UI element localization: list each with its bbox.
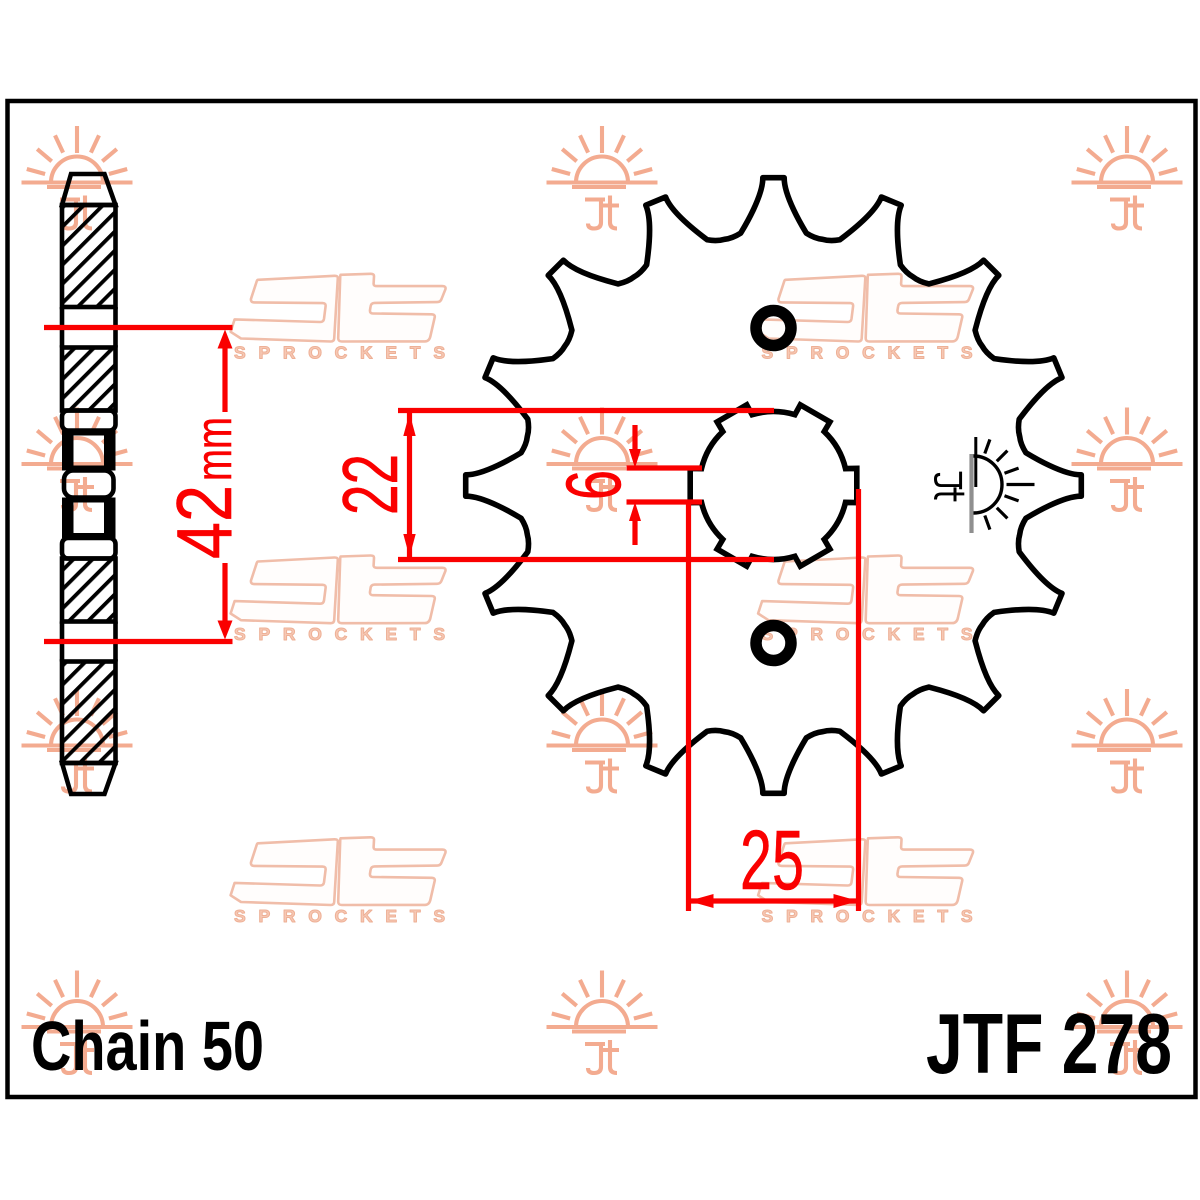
svg-text:22: 22	[326, 454, 414, 515]
svg-text:JTF 278: JTF 278	[926, 997, 1172, 1092]
svg-text:mm: mm	[186, 417, 242, 481]
svg-text:Chain 50: Chain 50	[31, 1007, 264, 1085]
svg-text:42: 42	[160, 485, 248, 559]
svg-text:6: 6	[549, 470, 637, 500]
svg-text:25: 25	[740, 813, 804, 907]
